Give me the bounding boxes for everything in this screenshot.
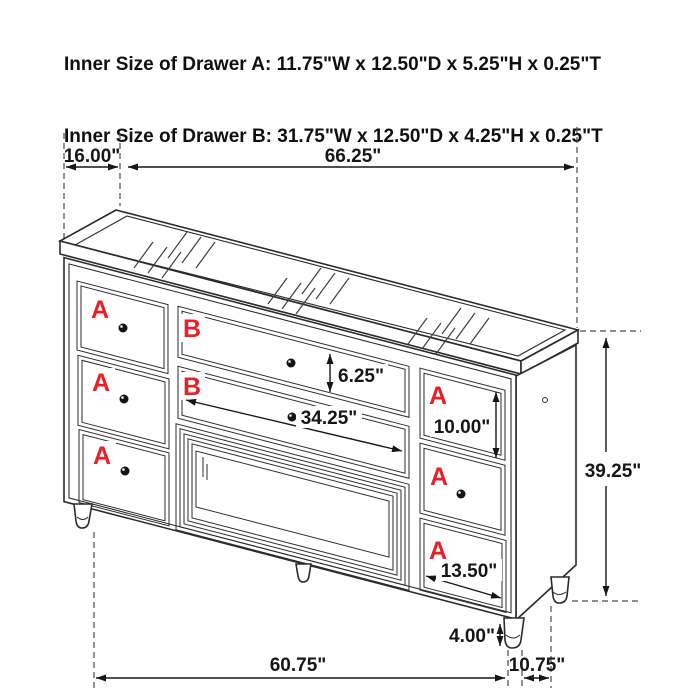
dim-base-side-depth: 10.75" bbox=[509, 655, 566, 676]
drawer-label-a: A bbox=[92, 369, 110, 397]
middle-leg bbox=[296, 564, 311, 582]
dim-drawer-b-height: 6.25" bbox=[338, 366, 384, 387]
back-right-leg bbox=[551, 577, 569, 603]
drawer-label-b: B bbox=[183, 373, 201, 401]
drawer-label-a: A bbox=[430, 463, 448, 491]
dim-base-front-width: 60.75" bbox=[270, 655, 327, 676]
dresser-line-drawing: A A A B B A A A bbox=[0, 0, 700, 700]
drawer-label-a: A bbox=[91, 296, 109, 324]
front-left-leg bbox=[74, 504, 92, 528]
dim-drawer-a-width: 13.50" bbox=[441, 561, 498, 582]
drawer-label-a: A bbox=[93, 442, 111, 470]
dim-drawer-a-height: 10.00" bbox=[434, 417, 491, 438]
knob bbox=[287, 359, 296, 368]
drawer-label-a: A bbox=[429, 382, 447, 410]
knob bbox=[119, 324, 128, 333]
dim-leg-height: 4.00" bbox=[449, 626, 495, 647]
dim-overall-height: 39.25" bbox=[585, 461, 642, 482]
cabinet: A A A B B A A A bbox=[60, 210, 578, 648]
knob bbox=[121, 467, 130, 476]
drawer-label-b: B bbox=[183, 315, 201, 343]
knob bbox=[457, 490, 466, 499]
dim-drawer-b-width: 34.25" bbox=[301, 408, 358, 429]
side-panel-hole bbox=[543, 398, 548, 403]
dim-top-depth: 16.00" bbox=[64, 146, 121, 167]
dim-top-width: 66.25" bbox=[325, 146, 382, 167]
knob bbox=[288, 413, 297, 422]
knob bbox=[120, 395, 129, 404]
dresser-dimension-diagram: Inner Size of Drawer A: 11.75"W x 12.50"… bbox=[0, 0, 700, 700]
front-right-leg bbox=[504, 618, 524, 648]
